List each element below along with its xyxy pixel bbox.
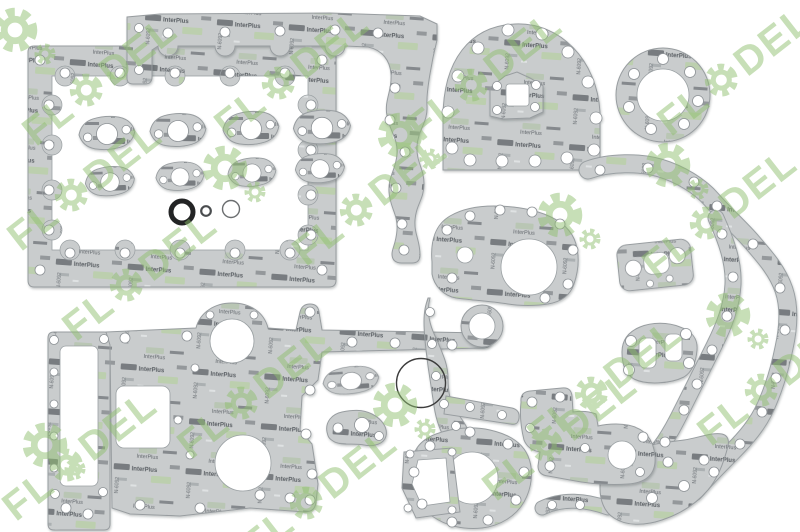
product-photo: InterPlus N-6092 InterPlus FL DEL bbox=[0, 0, 800, 532]
gasket-set-photo: InterPlus N-6092 InterPlus FL DEL bbox=[0, 0, 800, 532]
